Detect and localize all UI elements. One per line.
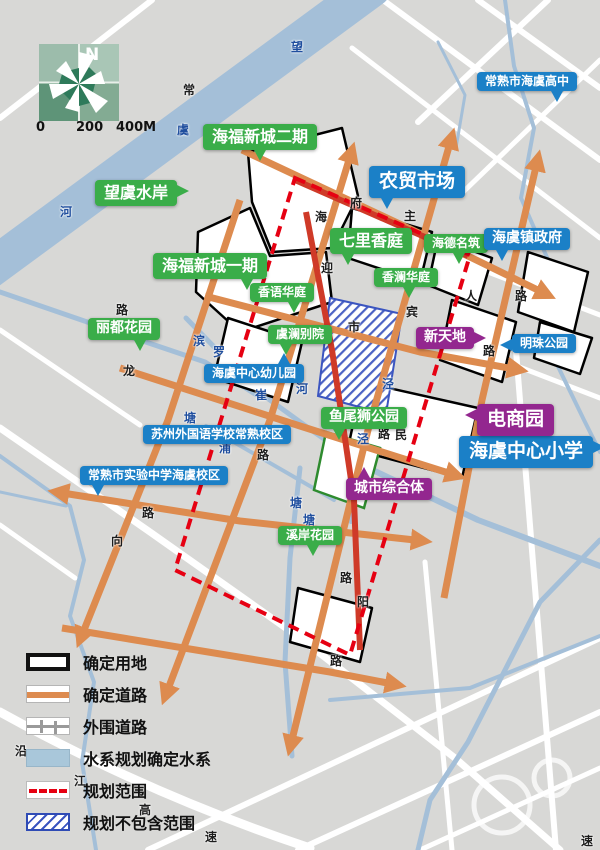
scale-tick: 0	[36, 120, 45, 135]
legend-row: 水系规划确定水系	[26, 748, 211, 768]
scale-tick: 400M	[116, 120, 156, 135]
legend-label: 确定用地	[83, 650, 147, 674]
legend-label: 外围道路	[83, 714, 147, 738]
legend-label: 规划范围	[83, 778, 147, 802]
planning-map: 望常虞河府主海迎宾人路市滨罗崔河泾塘路龙浦路泾路民路路向塘塘路阳路沿江高速速 海…	[0, 0, 600, 850]
scale-tick: 200	[76, 120, 103, 135]
legend-swatch-confirmed-road	[26, 685, 70, 703]
legend-swatch-outer-road	[26, 717, 70, 735]
legend-label: 规划不包含范围	[83, 810, 195, 834]
map-legend: 确定用地 确定道路 外围道路 水系规划确定水系 规划范围 规划不包含范围	[26, 652, 211, 844]
legend-swatch-confirmed-parcel	[26, 653, 70, 671]
legend-swatch-water	[26, 749, 70, 767]
compass-rose: N	[36, 40, 126, 126]
legend-swatch-excluded-range	[26, 813, 70, 831]
legend-row: 确定道路	[26, 684, 211, 704]
legend-row: 确定用地	[26, 652, 211, 672]
scale-bar: 0 200 400M	[30, 120, 150, 136]
legend-row: 规划不包含范围	[26, 812, 211, 832]
legend-swatch-planning-range	[26, 781, 70, 799]
legend-row: 外围道路	[26, 716, 211, 736]
legend-row: 规划范围	[26, 780, 211, 800]
legend-label: 确定道路	[83, 682, 147, 706]
compass-north-label: N	[85, 45, 99, 65]
legend-label: 水系规划确定水系	[83, 746, 211, 770]
